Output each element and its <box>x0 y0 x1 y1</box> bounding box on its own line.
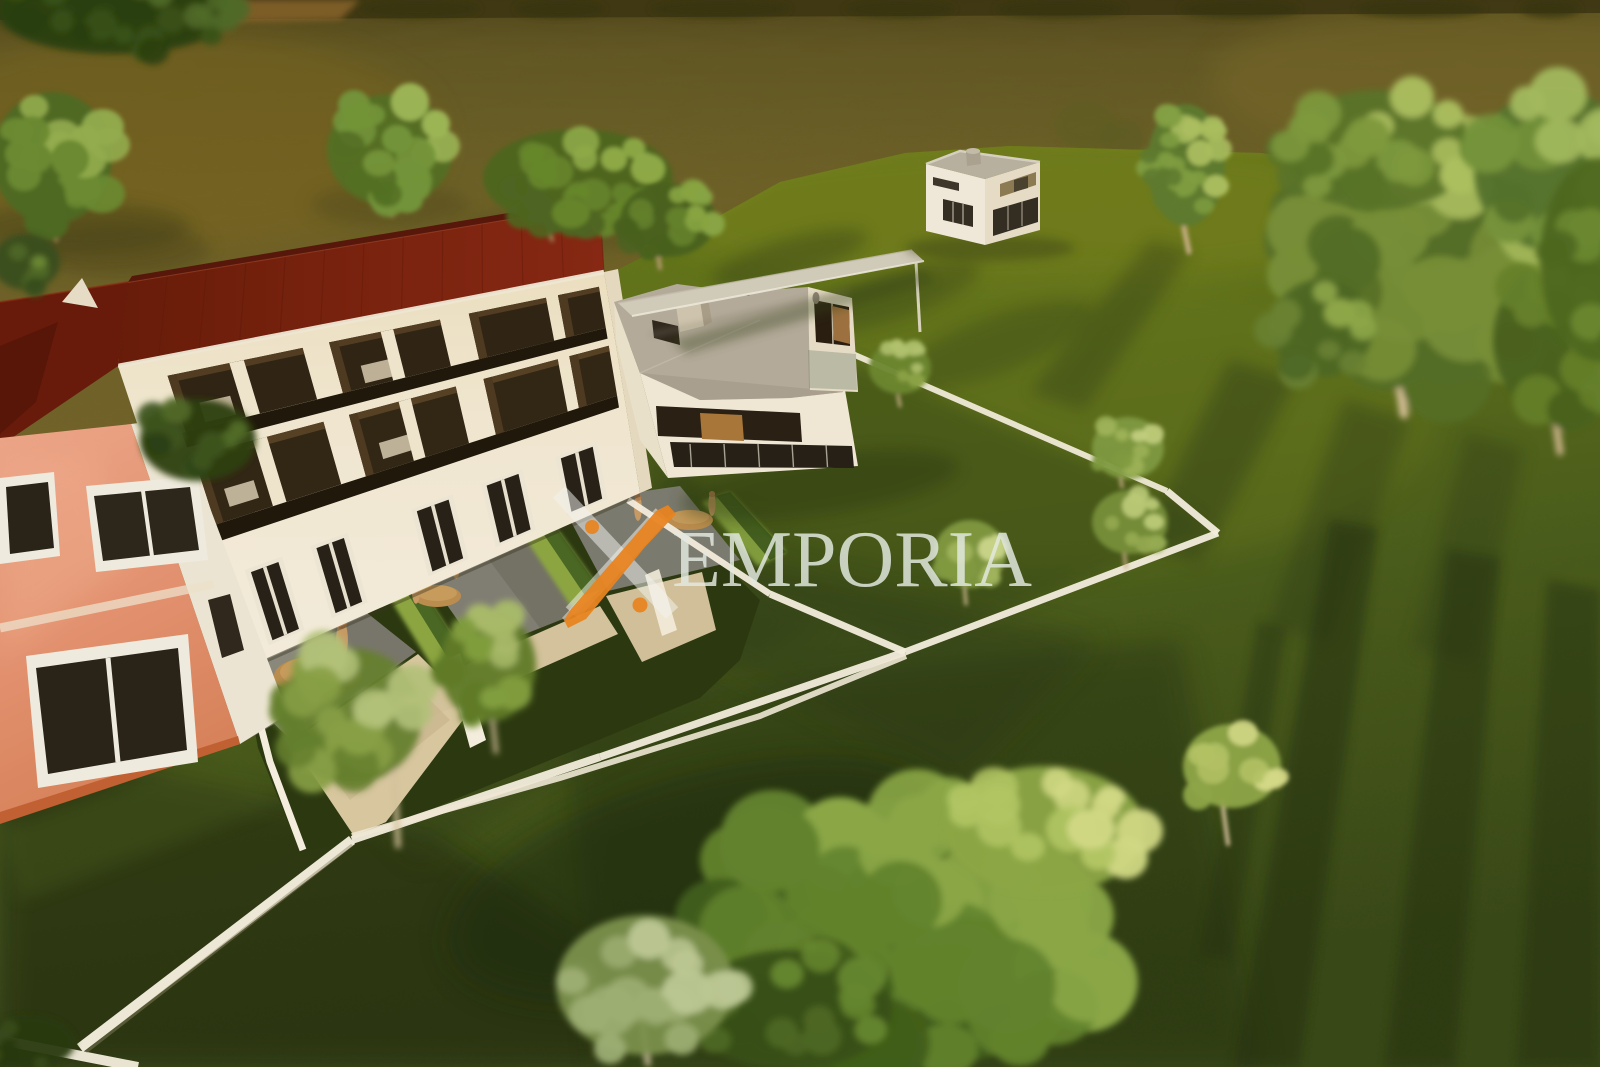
svg-text:EMPORIA: EMPORIA <box>672 516 1032 604</box>
